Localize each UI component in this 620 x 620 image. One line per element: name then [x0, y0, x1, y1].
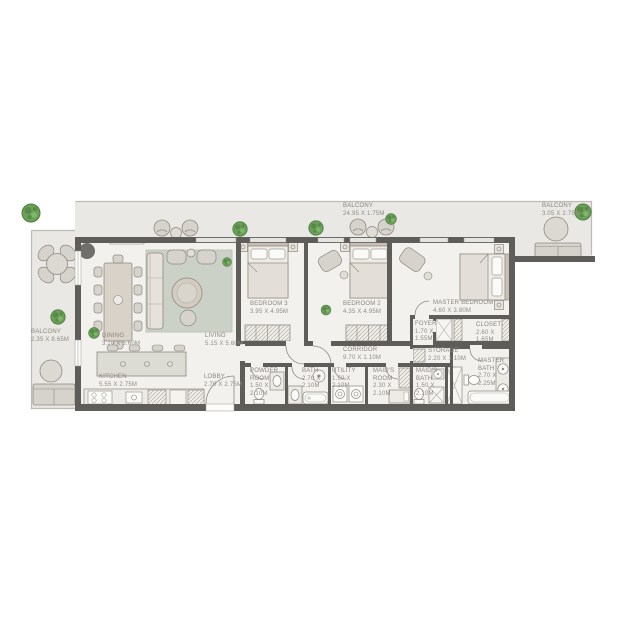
room-label-bedroom3: BEDROOM 3 3.95 X 4.95M — [250, 301, 288, 316]
room-dims: 2.60 X 1.65M — [476, 330, 500, 345]
sink-icon — [291, 390, 299, 401]
tree-icon — [89, 328, 100, 339]
floorplan-drawing — [0, 0, 620, 620]
kitchen-sink — [126, 392, 142, 403]
room-dims: 24.95 X 1.75M — [343, 211, 385, 219]
sofa-icon — [147, 253, 163, 329]
room-label-lobby: LOBBY 2.70 X 2.75M — [204, 374, 242, 389]
round-table — [544, 217, 568, 241]
tree-icon — [233, 222, 247, 236]
round-table-dark — [79, 243, 95, 259]
entry-opening — [206, 404, 234, 411]
room-name: KITCHEN — [99, 374, 137, 382]
room-label-balcony-top: BALCONY 24.95 X 1.75M — [343, 203, 385, 218]
room-dims: 2.30 X 2.10M — [373, 383, 397, 398]
room-label-corridor: CORRIDOR 9.70 X 1.10M — [343, 347, 381, 362]
room-label-maids-room: MAID'S ROOM 2.30 X 2.10M — [373, 368, 397, 398]
room-label-master-bedroom: MASTER BEDROOM 4.60 X 3.80M — [433, 300, 493, 315]
bar-stool — [174, 345, 185, 351]
armchair-icon — [197, 250, 216, 264]
pouf — [180, 310, 196, 326]
room-label-bedroom2: BEDROOM 2 4.35 X 4.95M — [343, 301, 381, 316]
tree-icon — [309, 221, 323, 235]
room-label-balcony-right: BALCONY 3.05 X 2.75M — [542, 203, 580, 218]
room-name: BALCONY — [343, 203, 385, 211]
armchair-icon — [167, 250, 186, 264]
room-name: BALCONY — [31, 329, 69, 337]
tree-icon — [51, 310, 65, 324]
room-dims: 3.10 X 5.60M — [102, 341, 140, 349]
room-label-storage: STORAGE 2.20 X 1.10M — [428, 348, 466, 363]
room-label-living: LIVING 5.15 X 5.60M — [205, 333, 243, 348]
room-dims: 1.50 X 2.10M — [416, 383, 440, 398]
floorplan: BALCONY 2.35 X 8.65M BALCONY 24.95 X 1.7… — [0, 0, 620, 620]
room-name: BATH — [302, 368, 326, 376]
room-name: MASTER BEDROOM — [433, 300, 493, 308]
room-label-maids-bath: MAID'S BATH 1.50 X 2.10M — [416, 368, 440, 398]
room-dims: 3.95 X 4.95M — [250, 309, 288, 317]
stove — [88, 391, 112, 404]
tree-icon — [22, 204, 40, 222]
room-name: MASTER BATH — [478, 358, 502, 373]
plant-icon — [223, 258, 232, 267]
room-name: POWDER ROOM — [250, 368, 278, 383]
room-label-utility: UTILITY 1.50 X 2.10M — [332, 368, 358, 391]
room-name: LOBBY — [204, 374, 242, 382]
room-label-dining: DINING 3.10 X 5.60M — [102, 333, 140, 348]
fridge — [188, 390, 204, 405]
bed — [350, 242, 390, 298]
plant-icon — [321, 305, 331, 315]
dishwasher — [148, 390, 166, 405]
room-name: BEDROOM 3 — [250, 301, 288, 309]
room-label-powder-room: POWDER ROOM 1.50 X 2.10M — [250, 368, 278, 398]
round-table — [40, 360, 62, 382]
room-name: STORAGE — [428, 348, 466, 356]
room-dims: 1.50 X 2.10M — [250, 383, 278, 398]
wardrobe — [346, 325, 391, 341]
room-dims: 4.35 X 4.95M — [343, 309, 381, 317]
wardrobe — [399, 368, 410, 388]
room-dims: 3.05 X 2.75M — [542, 211, 580, 219]
side-table — [187, 249, 195, 257]
room-label-kitchen: KITCHEN 5.55 X 2.75M — [99, 374, 137, 389]
bed — [248, 242, 288, 298]
room-dims: 1.50 X 2.10M — [332, 376, 358, 391]
room-name: FOYER — [415, 321, 435, 329]
bar-stool — [152, 345, 163, 351]
room-label-closet: CLOSET 2.60 X 1.65M — [476, 322, 500, 345]
room-dims: 2.70 X 2.25M — [478, 373, 502, 388]
room-dims: 2.35 X 8.65M — [31, 337, 69, 345]
cabinet — [170, 390, 186, 405]
room-name: CLOSET — [476, 322, 500, 330]
room-name: CORRIDOR — [343, 347, 381, 355]
room-name: UTILITY — [332, 368, 358, 376]
room-dims: 2.70 X 2.75M — [204, 382, 242, 390]
storage-shelf — [413, 349, 425, 362]
room-name: BEDROOM 2 — [343, 301, 381, 309]
room-name: BALCONY — [542, 203, 580, 211]
room-name: DINING — [102, 333, 140, 341]
room-dims: 2.70 X 2.10M — [302, 376, 326, 391]
bed — [460, 254, 510, 300]
room-label-foyer: FOYER 1.70 X 1.55M — [415, 321, 435, 344]
room-name: MAID'S BATH — [416, 368, 440, 383]
room-dims: 5.55 X 2.75M — [99, 382, 137, 390]
room-name: MAID'S ROOM — [373, 368, 397, 383]
room-dims: 4.60 X 3.80M — [433, 308, 493, 316]
room-name: LIVING — [205, 333, 243, 341]
room-dims: 2.20 X 1.10M — [428, 356, 466, 364]
room-dims: 5.15 X 5.60M — [205, 341, 243, 349]
room-dims: 9.70 X 1.10M — [343, 355, 381, 363]
wardrobe — [245, 325, 290, 341]
room-label-balcony-left: BALCONY 2.35 X 8.65M — [31, 329, 69, 344]
room-label-bath: BATH 2.70 X 2.10M — [302, 368, 326, 391]
room-label-master-bath: MASTER BATH 2.70 X 2.25M — [478, 358, 502, 388]
room-dims: 1.70 X 1.55M — [415, 329, 435, 344]
tree-icon — [386, 214, 397, 225]
